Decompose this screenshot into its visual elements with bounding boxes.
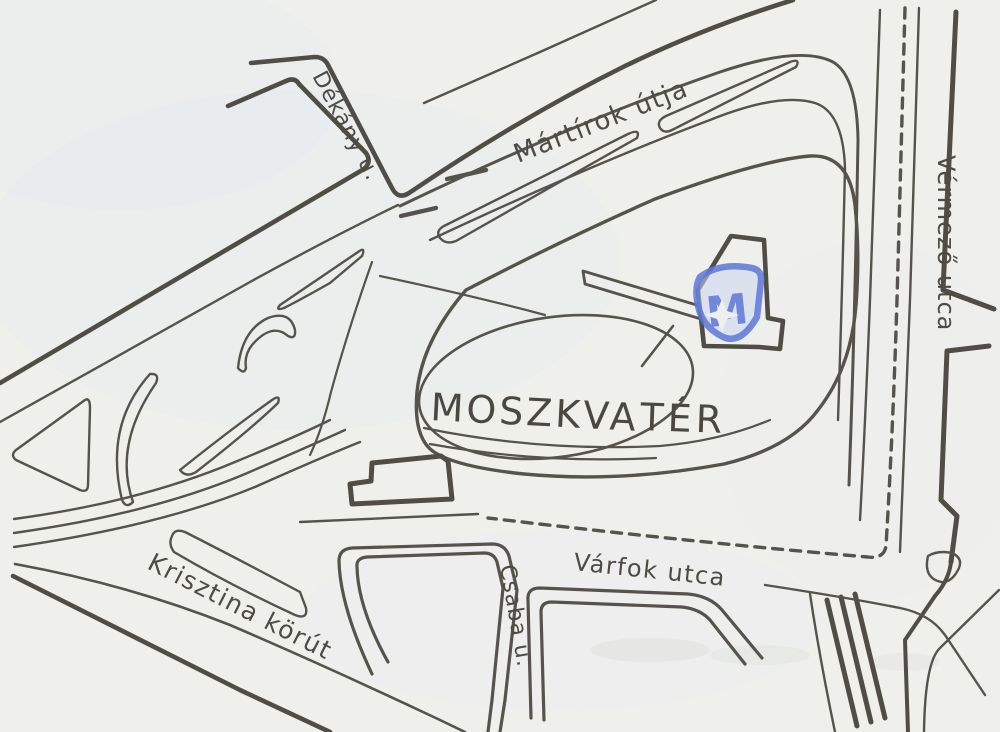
street-label-vermezo: Vérmező utca xyxy=(932,155,960,331)
square-label-ter: TÉR xyxy=(639,395,727,442)
scanned-map-page: M Dékány u. Mártírok útja Vérmező utca V… xyxy=(0,0,1000,732)
map-canvas: M Dékány u. Mártírok útja Vérmező utca V… xyxy=(0,0,1000,732)
metro-logo: M xyxy=(696,266,761,338)
metro-logo-letter: M xyxy=(704,284,751,337)
